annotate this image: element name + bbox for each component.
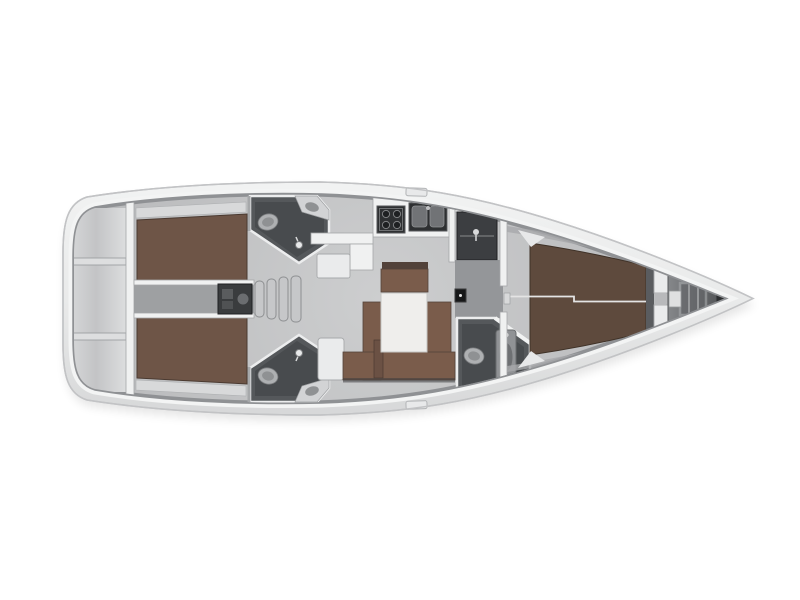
port-settee-locker-aft — [318, 338, 344, 380]
shower-mixer-icon — [296, 350, 303, 357]
engine-detail2 — [222, 301, 233, 309]
port-cabin-bed — [137, 214, 247, 283]
bed-end-wall — [646, 261, 654, 337]
fwd-cabin-bulkhead-bottom — [500, 312, 507, 382]
step-3 — [279, 277, 288, 321]
engine-compartment — [134, 280, 254, 318]
dinette-base-shadow — [343, 378, 455, 383]
step-4 — [291, 276, 301, 322]
stove-icon — [377, 206, 405, 233]
transom-strut-upper — [68, 258, 126, 265]
bow-cleat — [669, 291, 681, 307]
transom-strut-lower — [68, 333, 126, 340]
shower-mixer-icon — [296, 242, 303, 249]
transom-floor — [67, 208, 126, 392]
step-2 — [267, 279, 276, 319]
port-settee-locker — [317, 254, 350, 278]
engine-detail — [222, 289, 233, 299]
bow-bulkhead-center — [655, 293, 666, 305]
table-icon — [381, 293, 427, 352]
dinette-headboard — [381, 269, 428, 292]
galley-counter-leg — [350, 244, 373, 270]
stern-bulkhead — [126, 199, 134, 400]
panel-dot — [459, 294, 462, 297]
galley-counter-return — [311, 233, 373, 244]
stbd-cabin-bed — [137, 315, 247, 384]
step-1 — [255, 281, 264, 317]
floorplan-canvas — [0, 0, 800, 600]
fwd-cabin-bulkhead-top — [500, 212, 507, 286]
seam-handle — [504, 293, 510, 304]
yacht-floorplan-image — [0, 0, 800, 600]
engine-pulley — [237, 293, 249, 305]
swim-platform-transom — [67, 199, 134, 400]
dinette-bench-bottom — [343, 352, 455, 380]
